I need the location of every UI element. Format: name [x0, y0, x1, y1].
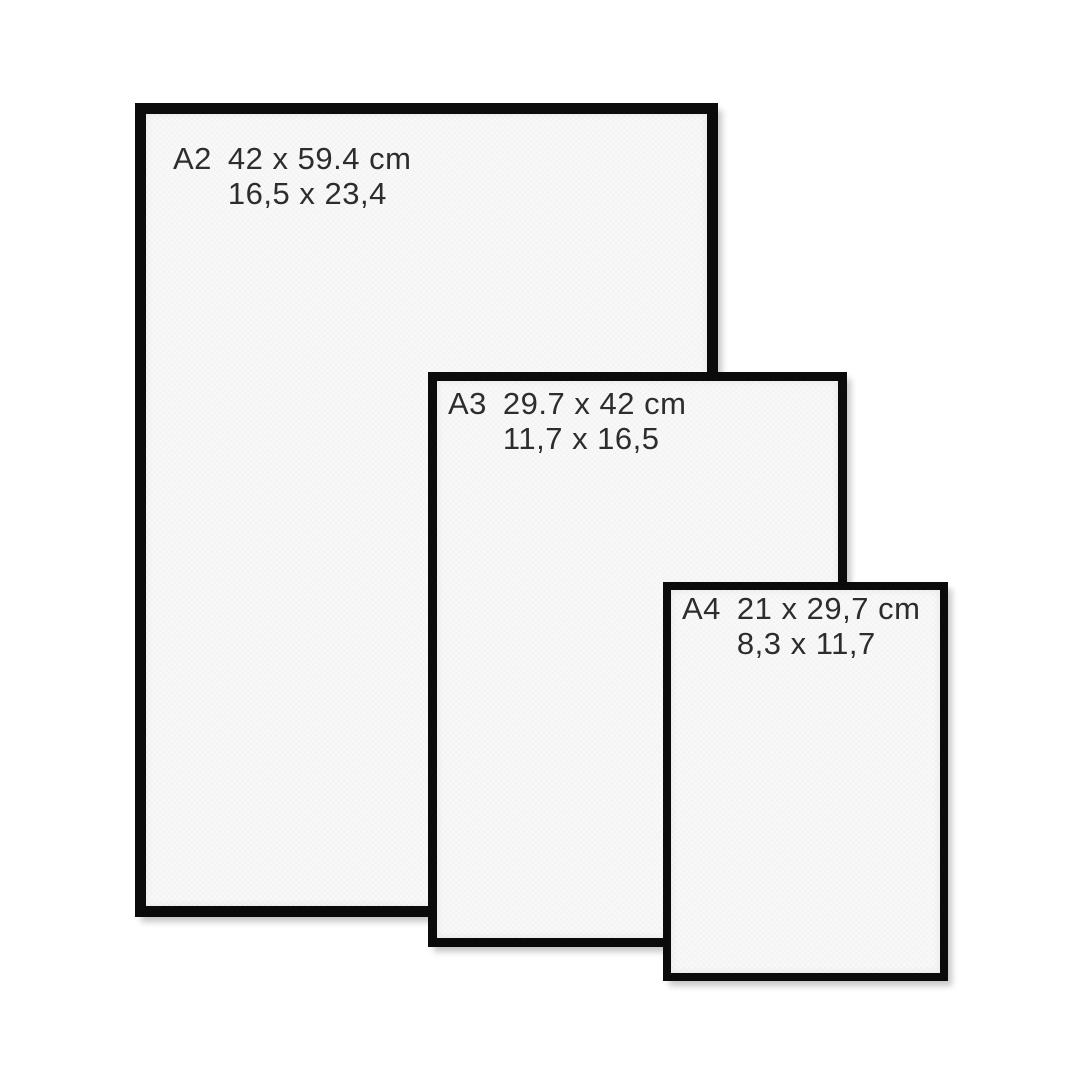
- frame-a4: A4 21 x 29,7 cm 8,3 x 11,7: [663, 582, 948, 981]
- frame-a4-dimensions: 21 x 29,7 cm 8,3 x 11,7: [737, 591, 920, 661]
- frame-a2-dimensions-inches: 16,5 x 23,4: [228, 176, 411, 211]
- frame-a2-dimensions: 42 x 59.4 cm 16,5 x 23,4: [228, 141, 411, 211]
- frame-a3-size-code: A3: [448, 386, 487, 421]
- frame-a2-label: A2 42 x 59.4 cm 16,5 x 23,4: [173, 141, 411, 211]
- frame-a3-dimensions-inches: 11,7 x 16,5: [503, 421, 686, 456]
- frame-a4-size-code: A4: [682, 591, 721, 626]
- frame-a3-dimensions: 29.7 x 42 cm 11,7 x 16,5: [503, 386, 686, 456]
- frame-a2-dimensions-cm: 42 x 59.4 cm: [228, 141, 411, 176]
- frame-a4-dimensions-cm: 21 x 29,7 cm: [737, 591, 920, 626]
- frame-a4-label: A4 21 x 29,7 cm 8,3 x 11,7: [682, 591, 920, 661]
- frame-a3-dimensions-cm: 29.7 x 42 cm: [503, 386, 686, 421]
- frame-a4-dimensions-inches: 8,3 x 11,7: [737, 626, 920, 661]
- frame-a3-label: A3 29.7 x 42 cm 11,7 x 16,5: [448, 386, 686, 456]
- frame-a2-size-code: A2: [173, 141, 212, 176]
